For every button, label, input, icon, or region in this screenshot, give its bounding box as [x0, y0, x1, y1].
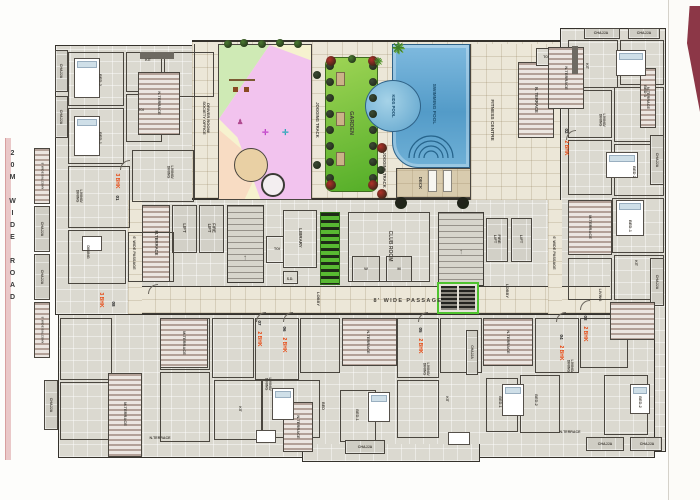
label-chajja: CHAJJA: [598, 442, 612, 446]
label-fire-lift: FIRE LIFT: [493, 234, 501, 243]
label-living-dining: LIVING/ DINING: [264, 377, 272, 390]
label-m-terrace: M.TERRACE: [123, 402, 127, 426]
label-6ft-wide-passage: 6' WIDE PASSAGE: [132, 236, 136, 269]
unit-number-07: 07: [257, 320, 262, 325]
label-bed2: BED-2: [638, 396, 642, 407]
label-kitchen: KIT: [238, 406, 242, 411]
label-bed1: BED-1: [355, 409, 359, 420]
label-kitchen: KIT: [585, 63, 589, 69]
floor-plan-page: 20M WIDE ROAD ✛ ✛ ♟: [0, 0, 700, 500]
label-chajja: CHAJJA: [40, 270, 44, 284]
unit-tag-2bhk: 2 BHK: [417, 338, 422, 353]
labels-layer: GARDENJOGGING TRACKJOGGING TRACKSWIMMING…: [0, 0, 700, 500]
label-kids-pool: KIDS POOL: [391, 94, 395, 117]
label-kitchen: KIT: [445, 396, 449, 401]
label-chajja: CHAJJA: [470, 345, 474, 359]
label-m-terrace: M.TERRACE: [588, 215, 592, 239]
unit-number-04: 04: [559, 334, 564, 339]
label-bed1: BED-1: [98, 132, 102, 144]
label-living-dining: LIVING/ DINING: [598, 113, 606, 126]
label-fitness-centre: FITNESS CENTRE: [489, 99, 494, 140]
unit-tag-2bhk: 2 BHK: [281, 337, 286, 352]
label-bed3: BED 3: [643, 85, 647, 97]
label-swimming-pool: SWIMMING POOL: [431, 84, 436, 125]
label-chajja: CHAJJA: [49, 398, 53, 412]
label-lift: LIFT: [182, 223, 187, 232]
label-n-terrace: N. TERRACE: [534, 87, 538, 113]
label-dining: DINING: [86, 245, 90, 258]
label-living-dining: LIVING/ DINING: [566, 359, 574, 372]
label-bed1: BED-1: [628, 220, 632, 232]
label-n-terrace: N.TERRACE: [149, 436, 170, 440]
unit-number-08: 08: [111, 301, 116, 306]
label-chajja: CHAJJA: [594, 31, 608, 35]
label-n-terrace: N.TERRACE: [366, 330, 370, 353]
label-n-terrace: N.TERRACE: [564, 66, 568, 89]
unit-tag-3bhk: 3 BHK: [114, 173, 119, 188]
label-n-terrace: N.TERRACE: [296, 415, 300, 438]
label-living-dining: LIVING/ DINING: [422, 362, 430, 375]
label-library: LIBRARY: [298, 228, 303, 247]
label-lobby: LOBBY: [316, 292, 320, 306]
label-living-dining: LIVING/ DINING: [166, 165, 174, 178]
label-chajja: CHAJJA: [59, 64, 63, 78]
label-fire-lift: FIRE LIFT: [207, 223, 216, 233]
label-balcony: 5' WIDE BALCONY: [40, 163, 43, 190]
unit-number-06: 06: [282, 326, 287, 331]
label-n-terrace: N.TERRACE: [559, 430, 580, 434]
label-toi: TOI: [543, 55, 549, 59]
label-deck: DECK: [418, 177, 423, 189]
label-toi: TOI: [138, 108, 144, 112]
stairs-up-arrow: ↑: [243, 254, 247, 262]
unit-tag-3bhk: 3 BHK: [98, 292, 103, 307]
label-chajja: CHAJJA: [358, 445, 372, 449]
label-bed2: BED-2: [98, 74, 102, 86]
label-sd: S.D.: [287, 277, 294, 281]
label-bed: BED: [321, 402, 325, 410]
unit-number-01: 01: [115, 195, 120, 200]
label-jogging-track: JOGGING TRACK: [382, 152, 386, 187]
label-m-terrace: M.TERRACE: [154, 231, 158, 256]
label-n-terrace: N.TERRACE: [506, 330, 510, 353]
unit-tag-2bhk: 2 BHK: [558, 345, 563, 360]
label-chajja: CHAJJA: [59, 110, 63, 124]
label-living-dining: LIVING/ DINING: [75, 189, 83, 202]
label-jogging-track: JOGGING TRACK: [315, 102, 319, 137]
unit-number-03: 03: [583, 315, 588, 320]
label-driver-room-society-office: DRIVER ROOM/ SOCIETY OFFICE: [202, 101, 210, 134]
label-kitchen: KIT: [634, 260, 638, 266]
label-6ft-wide-passage: 6' WIDE PASSAGE: [552, 236, 556, 269]
label-bed2: BED-2: [534, 394, 538, 405]
label-toilet-m: M: [397, 267, 400, 271]
label-toilet-w: W: [364, 267, 368, 271]
stairs-up-arrow: ↑: [459, 248, 463, 256]
label-garden: GARDEN: [348, 111, 354, 135]
label-bed1: BED-1: [498, 396, 502, 407]
floor-plan: ✛ ✛ ♟: [0, 0, 700, 500]
label-chajja: CHAJJA: [637, 31, 651, 35]
unit-tag-2bhk: 2 BHK: [563, 140, 568, 155]
label-m-terrace: M.TERRACE: [182, 331, 186, 355]
label-8ft-wide-passage: 8' WIDE PASSAGE: [374, 298, 443, 304]
unit-number-05: 05: [418, 327, 423, 332]
label-lift: LIFT: [519, 235, 523, 243]
unit-tag-2bhk: 2 BHK: [582, 326, 587, 341]
label-living: LIVING: [598, 289, 602, 302]
label-n-terrace: N.TERRACE: [157, 91, 161, 114]
label-club-room: CLUB ROOM: [387, 231, 392, 262]
label-chajja: CHAJJA: [655, 153, 659, 167]
label-chajja: CHAJJA: [640, 442, 654, 446]
label-toi: TOI: [274, 247, 280, 251]
label-chajja: CHAJJA: [655, 275, 659, 289]
unit-number-02: 02: [564, 128, 569, 133]
unit-tag-2bhk: 2 BHK: [256, 331, 261, 346]
label-balcony: 5' WIDE BALCONY: [40, 317, 43, 344]
label-lobby: LOBBY: [505, 284, 509, 298]
label-bed2: BED 2: [632, 166, 636, 178]
label-chajja: CHAJJA: [40, 222, 44, 236]
label-kitchen: KIT: [145, 58, 151, 62]
